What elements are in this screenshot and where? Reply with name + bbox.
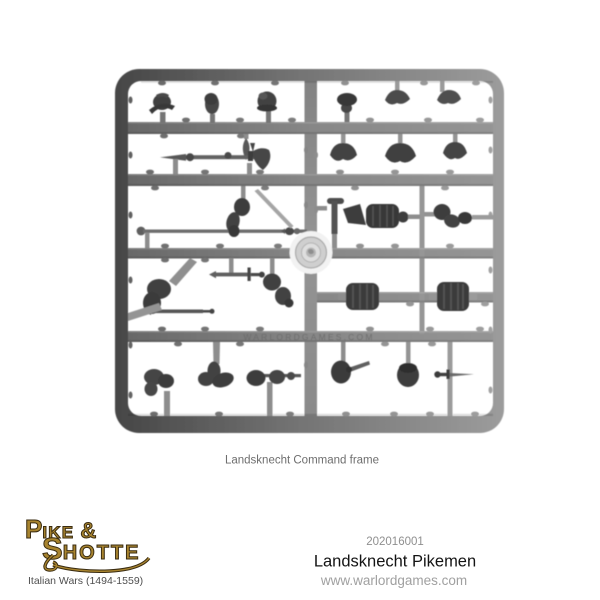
svg-text:202016001: 202016001 <box>366 536 424 548</box>
svg-text:Italian Wars (1494-1559): Italian Wars (1494-1559) <box>28 575 143 587</box>
svg-text:Landsknecht Pikemen: Landsknecht Pikemen <box>314 553 476 571</box>
svg-text:www.warlordgames.com: www.warlordgames.com <box>320 573 467 588</box>
svg-text:WARLORDGAMES.COM: WARLORDGAMES.COM <box>243 332 374 342</box>
svg-text:Landsknecht Command frame: Landsknecht Command frame <box>225 455 379 467</box>
